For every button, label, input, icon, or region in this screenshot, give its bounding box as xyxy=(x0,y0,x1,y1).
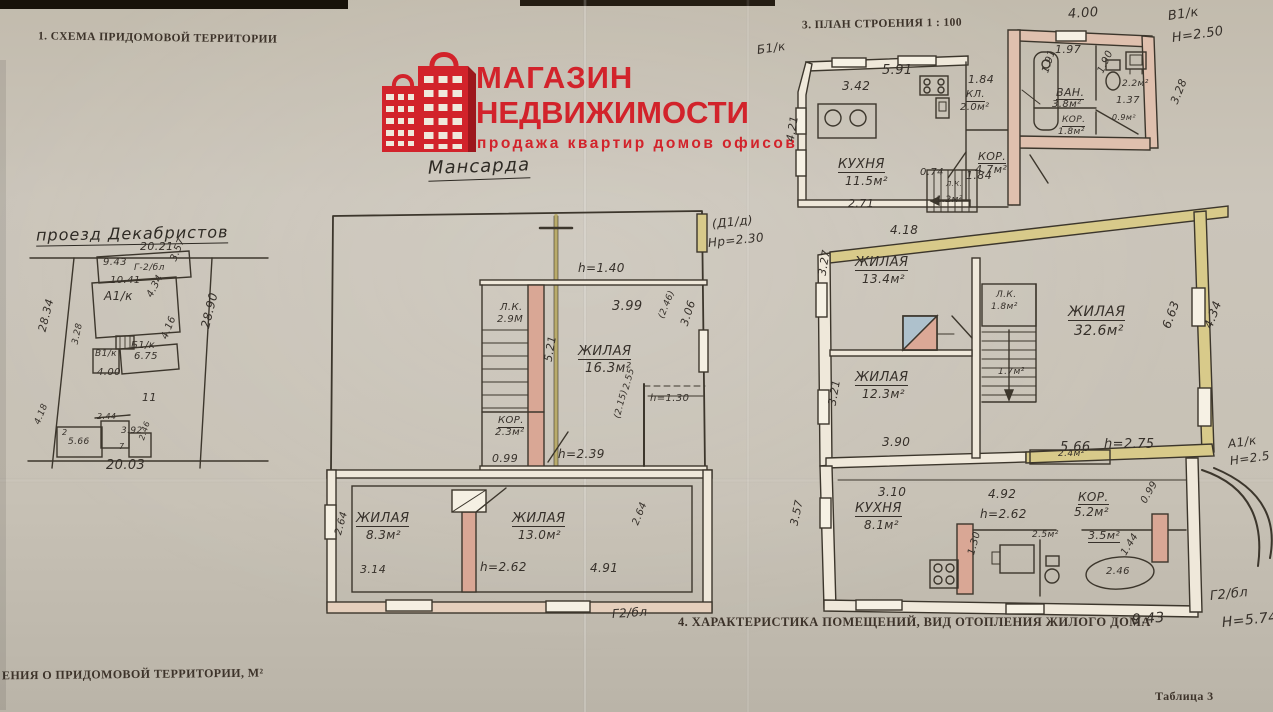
plan-label: (2.15) xyxy=(614,389,630,420)
plan-label: 28.90 xyxy=(199,291,219,329)
plan-label: Л.К. xyxy=(996,291,1016,300)
plan-label: h=2.75 xyxy=(1104,438,1154,451)
plan-label: 3.57 xyxy=(789,499,805,527)
plan-label: КОР. xyxy=(1062,116,1085,127)
plan-label: 4.18 xyxy=(34,403,50,426)
plan-label: 1.97 xyxy=(1055,44,1081,55)
plan-label: 0.9м² xyxy=(1112,114,1136,122)
plan-label: 4.00 xyxy=(1068,6,1099,21)
plan-label: ЖИЛАЯ xyxy=(855,371,908,386)
plan-label: 9.43 xyxy=(1132,611,1166,627)
plan-label: 13.0м² xyxy=(518,529,561,541)
plan-label: 11.5м² xyxy=(845,175,888,187)
plan-label: А1/к xyxy=(104,290,133,302)
plan-label: Б1/к xyxy=(131,341,155,351)
plan-label: 5.91 xyxy=(882,64,913,77)
plan-label: 2 xyxy=(62,429,68,437)
plan-label: 2.64 xyxy=(334,511,350,537)
plan-label: КУХНЯ xyxy=(855,502,902,517)
plan-label: А1/к xyxy=(1227,434,1257,450)
plan-label: Н=5.74 xyxy=(1221,610,1273,630)
plan-label: 2.3м² xyxy=(495,428,524,438)
plan-label: 3.21 xyxy=(827,379,842,407)
plan-label: Н=2.50 xyxy=(1171,25,1224,45)
plan-label: Н=2.5 xyxy=(1229,449,1270,466)
plan-label: 3.14 xyxy=(360,564,386,575)
plan-label: ЖИЛАЯ xyxy=(356,512,409,527)
plan-label: (2.46) xyxy=(658,289,677,320)
plan-label: Б1/к xyxy=(756,40,786,56)
plan-label: 1.30 xyxy=(967,531,983,557)
plan-label: 3.42 xyxy=(842,80,870,92)
plan-label: Г2/бл xyxy=(1209,586,1248,603)
scanned-document: { "page": { "section1_title": "1. СХЕМА … xyxy=(0,0,1273,712)
plan-label: КОР. xyxy=(1078,491,1109,505)
plan-label: 2.9М xyxy=(497,315,523,325)
plan-label: 3.28 xyxy=(72,322,85,345)
plan-label: 3.06 xyxy=(679,299,698,327)
plan-label: 3.90 xyxy=(882,436,910,448)
plan-label: КУХНЯ xyxy=(838,158,885,173)
plan-label: h=1.40 xyxy=(578,262,625,274)
plan-label: 1.7м² xyxy=(998,368,1025,377)
plan-label: ЖИЛАЯ xyxy=(512,512,565,527)
annotation-labels-layer: 20.2128.3428.909.43Г-2/бл3.5710.41А1/к4.… xyxy=(0,0,1273,712)
plan-label: 3.8м² xyxy=(1052,100,1081,110)
plan-label: 2.5м² xyxy=(1032,531,1059,540)
plan-label: 11 xyxy=(142,392,157,403)
plan-label: 1.91 xyxy=(1041,49,1058,75)
plan-label: Л.К. xyxy=(946,181,962,188)
plan-label: ЖИЛАЯ xyxy=(855,256,908,271)
plan-label: 7 xyxy=(119,443,125,451)
plan-label: h=2.62 xyxy=(480,561,527,573)
plan-label: 4.7м² xyxy=(975,164,1007,175)
plan-label: 4.34 xyxy=(1202,299,1223,330)
plan-label: 6.63 xyxy=(1160,299,1181,330)
plan-label: В1/к xyxy=(1167,6,1200,23)
plan-label: 0.99 xyxy=(1140,480,1161,506)
plan-label: ЖИЛАЯ xyxy=(578,345,631,360)
plan-label: 8.1м² xyxy=(864,519,899,531)
plan-label: 2.46 xyxy=(1106,567,1130,577)
plan-label: (Д1/д) xyxy=(711,214,753,230)
plan-label: 3.99 xyxy=(612,300,643,313)
plan-label: 1.8м² xyxy=(991,303,1018,312)
plan-label: 5.21 xyxy=(543,335,558,363)
plan-label: КЛ. xyxy=(966,90,985,102)
plan-label: 1.90 xyxy=(1096,49,1115,75)
plan-label: 32.6м² xyxy=(1074,324,1124,338)
plan-label: 1.84 xyxy=(968,74,994,85)
plan-label: В1/к xyxy=(95,350,117,359)
plan-label: 2.71 xyxy=(848,198,874,209)
plan-label: 4.18 xyxy=(890,224,918,236)
plan-label: 2.46 xyxy=(138,420,152,441)
plan-label: 6.75 xyxy=(134,352,158,362)
plan-label: 4.21 xyxy=(785,115,800,143)
plan-label: 4.92 xyxy=(988,488,1016,500)
plan-label: 28.34 xyxy=(37,298,56,333)
plan-label: 2.64 xyxy=(631,501,649,527)
plan-label: 0.74 xyxy=(920,168,944,178)
plan-label: Л.К. xyxy=(500,303,523,313)
plan-label: 1.8м² xyxy=(1058,128,1085,137)
plan-label: ЖИЛАЯ xyxy=(1068,305,1125,321)
plan-label: 1.2м² xyxy=(936,196,963,205)
plan-label: 1.37 xyxy=(1116,96,1140,106)
plan-label: Нр=2.30 xyxy=(707,231,764,249)
plan-label: 0.99 xyxy=(492,453,518,464)
plan-label: h=2.39 xyxy=(558,448,605,460)
plan-label: 2.44 xyxy=(97,413,116,421)
plan-label: 20.21 xyxy=(140,241,174,252)
plan-label: 3.28 xyxy=(1169,77,1189,105)
plan-label: 2.2м² xyxy=(1122,80,1149,89)
plan-label: Г2/бл xyxy=(612,606,648,620)
plan-label: 4.34 xyxy=(146,274,166,300)
plan-label: 9.43 xyxy=(103,258,127,268)
plan-label: 12.3м² xyxy=(862,388,905,400)
plan-label: 4.16 xyxy=(160,315,178,341)
plan-label: 8.3м² xyxy=(366,529,401,541)
plan-label: 20.03 xyxy=(106,459,145,472)
plan-label: 4.91 xyxy=(590,562,618,574)
plan-label: 2.0м² xyxy=(960,103,989,113)
plan-label: 4.00 xyxy=(97,368,121,378)
plan-label: 10.41 xyxy=(110,276,141,286)
plan-label: 5.2м² xyxy=(1074,506,1109,518)
plan-label: 16.3м² xyxy=(585,362,631,375)
plan-label: 3.10 xyxy=(878,486,906,498)
plan-label: 2.4м² xyxy=(1058,450,1085,459)
plan-label: 3.5м² xyxy=(1088,530,1120,543)
plan-label: 13.4м² xyxy=(862,273,905,285)
plan-label: h=1.30 xyxy=(650,394,689,404)
plan-label: Г-2/бл xyxy=(134,264,165,273)
plan-label: h=2.62 xyxy=(980,508,1027,520)
plan-label: 3.27 xyxy=(817,249,832,277)
plan-label: 1.44 xyxy=(1120,532,1141,558)
plan-label: 5.66 xyxy=(68,438,90,447)
